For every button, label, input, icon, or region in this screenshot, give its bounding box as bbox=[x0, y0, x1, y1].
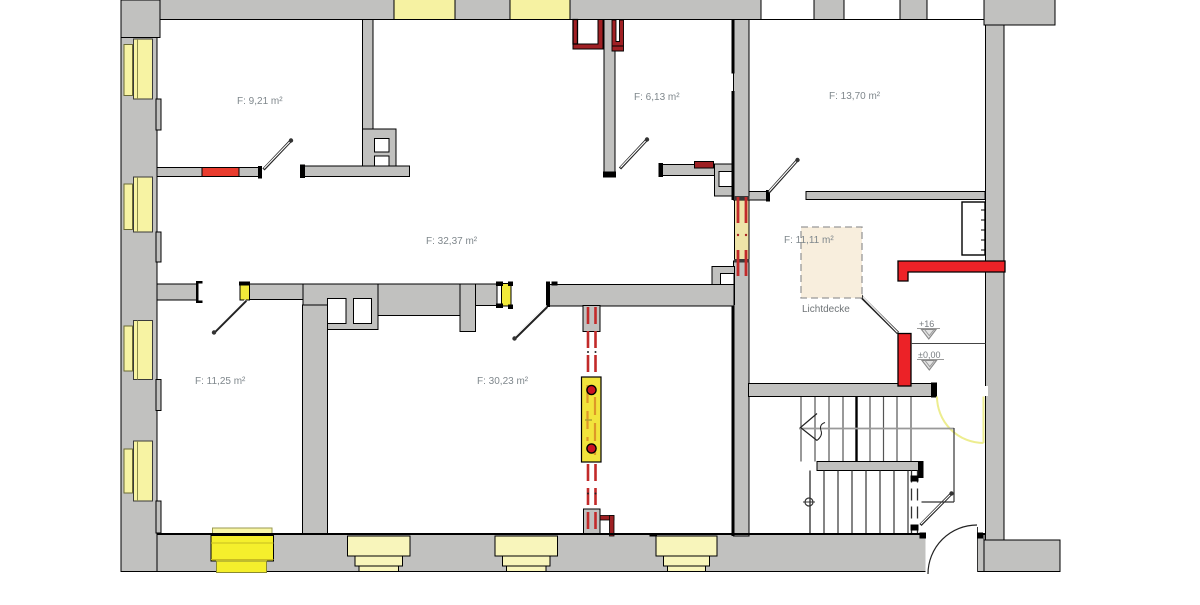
svg-text:Lichtdecke: Lichtdecke bbox=[802, 304, 850, 315]
svg-text:F: 6,13 m²: F: 6,13 m² bbox=[634, 92, 680, 103]
svg-text:F: 13,70 m²: F: 13,70 m² bbox=[829, 91, 881, 102]
svg-text:±0,00: ±0,00 bbox=[918, 350, 940, 360]
svg-text:F: 32,37 m²: F: 32,37 m² bbox=[426, 236, 478, 247]
svg-text:F: 11,25 m²: F: 11,25 m² bbox=[195, 376, 246, 387]
svg-text:F: 11,11 m²: F: 11,11 m² bbox=[784, 235, 834, 246]
svg-text:F: 9,21 m²: F: 9,21 m² bbox=[237, 96, 283, 107]
svg-text:F: 30,23 m²: F: 30,23 m² bbox=[477, 376, 529, 387]
svg-text:+16: +16 bbox=[919, 319, 934, 329]
